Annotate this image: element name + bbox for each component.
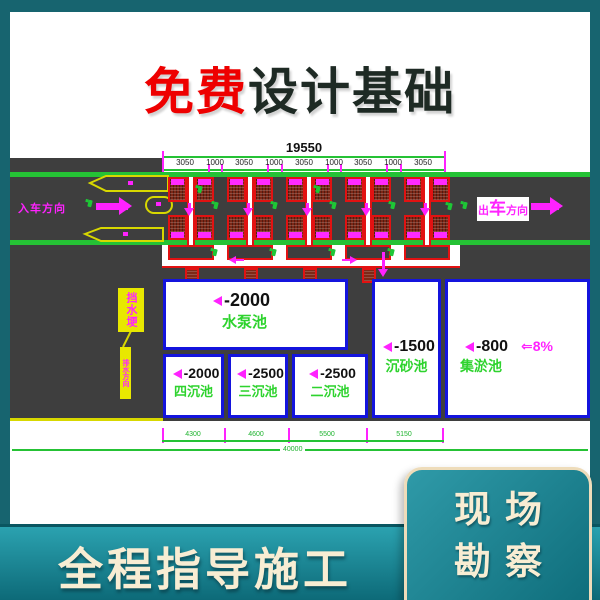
grate	[195, 215, 214, 240]
grate	[372, 177, 391, 202]
wash-bay	[404, 177, 450, 245]
exit-arrow	[531, 203, 559, 210]
flow-arrow-grit	[382, 252, 385, 274]
corner-badge: 现场 勘察	[404, 467, 592, 600]
flow-arrow-down	[247, 203, 250, 213]
drain-notch	[404, 245, 450, 260]
headline: 免费设计基础	[0, 52, 600, 124]
pool-silt: -800 集淤池	[445, 279, 590, 418]
flow-arrow-down	[188, 203, 191, 213]
dim-overall: 40000	[280, 446, 305, 453]
badge-line1: 现场	[407, 484, 589, 536]
grate	[227, 177, 246, 202]
grate	[313, 215, 332, 240]
flow-arrow-down	[424, 203, 427, 213]
entry-direction-label: 入车方向	[18, 200, 66, 216]
pool-pump: -2000 水泵池	[163, 279, 348, 350]
flow-arrow-down	[365, 203, 368, 213]
grate	[254, 177, 273, 202]
grate	[286, 177, 305, 202]
wash-bay	[286, 177, 332, 245]
flow-arrow-left	[232, 259, 244, 261]
pool-3: -2500 三沉池	[228, 354, 288, 418]
yellow-baseline	[10, 418, 163, 421]
headline-rest: 设计基础	[248, 64, 456, 120]
slope-label: ⇐8%	[521, 338, 553, 355]
dim-pool: 5500	[307, 431, 347, 438]
pool-4: -2000 四沉池	[163, 354, 224, 418]
entry-arrow	[96, 203, 128, 210]
flow-arrow-right	[342, 259, 354, 261]
dim-line-pools	[162, 440, 444, 442]
badge-line2: 勘察	[407, 536, 589, 588]
poster: 免费设计基础 19550 3050 1000 3050 1000 3050 10…	[0, 0, 600, 600]
grate	[254, 215, 273, 240]
drain-notch	[168, 245, 214, 260]
dim-total: 19550	[162, 140, 446, 155]
dim-pool: 4300	[173, 431, 213, 438]
grate	[431, 215, 450, 240]
grate	[168, 177, 187, 202]
grate	[372, 215, 391, 240]
dim-pool: 4600	[236, 431, 276, 438]
pool-2: -2500 二沉池	[292, 354, 368, 418]
drainage-gallery	[162, 245, 460, 268]
drain-notch	[286, 245, 332, 260]
flow-arrow-down	[306, 203, 309, 213]
banner-text: 全程指导施工	[0, 533, 410, 598]
pool-grit: -1500 沉砂池	[372, 279, 441, 418]
grate	[345, 177, 364, 202]
wash-bay	[168, 177, 214, 245]
dim-pool: 5150	[384, 431, 424, 438]
callout-note: 排水方向	[120, 347, 131, 399]
exit-direction-label: 出车方向	[477, 197, 529, 221]
wash-bay	[227, 177, 273, 245]
grate	[431, 177, 450, 202]
callout-label: 挡水埂	[118, 288, 144, 332]
grate	[404, 177, 423, 202]
headline-highlight: 免费	[144, 64, 248, 120]
wash-bay	[345, 177, 391, 245]
